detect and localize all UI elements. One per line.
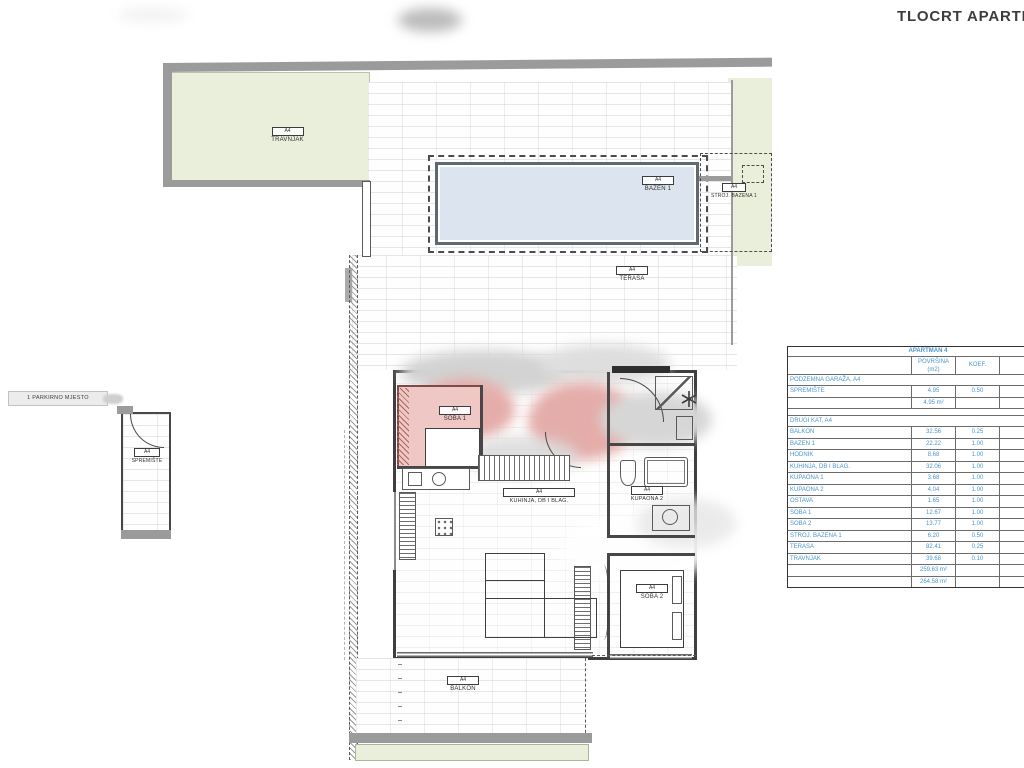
- page-title: TLOCRT APARTI: [897, 8, 1024, 25]
- row-cut: [1000, 485, 1024, 496]
- entrance-mat: [612, 366, 670, 373]
- sofa-chaise: [485, 598, 597, 638]
- total-value: 259.63 m²: [912, 565, 956, 576]
- storage-wall-base: [121, 530, 171, 539]
- table-row: TERASA82.410.25: [788, 541, 1024, 553]
- table-header-row: POVRŠINA(m2) KOEF. POKO: [788, 356, 1024, 374]
- row-name: KUHINJA, DB I BLAG.: [788, 462, 912, 473]
- terrace-paving: [352, 255, 737, 370]
- pool: [435, 162, 699, 245]
- row-cut: [1000, 473, 1024, 484]
- total-value: 264.58 m²: [912, 577, 956, 588]
- row-name: KUPAONA 1: [788, 473, 912, 484]
- label-travnjak: A4 TRAVNJAK: [250, 127, 325, 144]
- row-cut: [1000, 554, 1024, 565]
- dimension-line: [344, 430, 345, 660]
- row-area: 4.95: [912, 386, 956, 397]
- balcony-floor: [356, 658, 588, 735]
- washbasin: [676, 416, 693, 440]
- row-name: HODNIK: [788, 450, 912, 461]
- table-row: HODNIK8.681.00: [788, 449, 1024, 461]
- soba1-bed: [425, 428, 480, 468]
- partition-wall: [607, 535, 695, 538]
- row-koef: 1.00: [956, 496, 1000, 507]
- total-row: 264.58 m² 1: [788, 576, 1024, 588]
- kitchen-appliance: [435, 518, 453, 536]
- sofa-side-curve: [598, 565, 609, 640]
- row-name: KUPAONA 2: [788, 485, 912, 496]
- row-koef: 1.00: [956, 519, 1000, 530]
- label-kuhinja: A4 KUHINJA, DB I BLAG.: [498, 488, 580, 505]
- smudge-blob: [540, 344, 670, 384]
- table-row: TRAVNJAK39.680.10: [788, 553, 1024, 565]
- total-cut: 1: [1000, 565, 1024, 576]
- table-row: SOBA 112.671.00: [788, 507, 1024, 519]
- row-name: TERASA: [788, 542, 912, 553]
- row-area: 3.68: [912, 473, 956, 484]
- room-name: SOBA 2: [626, 593, 678, 601]
- label-stroj-bazena: A4 STROJ. BAZENA 1: [690, 183, 778, 200]
- row-name: BALKON: [788, 427, 912, 438]
- subtotal-value: 4.95 m²: [912, 398, 956, 409]
- row-name: SOBA 2: [788, 519, 912, 530]
- label-balkon: A4 BALKON: [428, 676, 498, 693]
- partition-wall: [607, 443, 695, 446]
- row-name: SOBA 1: [788, 508, 912, 519]
- perimeter-wall-top: [163, 58, 772, 72]
- toilet: [620, 460, 636, 486]
- total-koef: [956, 565, 1000, 576]
- room-name: STROJ. BAZENA 1: [690, 192, 778, 200]
- pool-equipment-detail: [742, 165, 764, 183]
- total-row: 259.63 m² 1: [788, 564, 1024, 576]
- row-cut: [1000, 531, 1024, 542]
- room-name: TRAVNJAK: [250, 136, 325, 144]
- row-name: TRAVNJAK: [788, 554, 912, 565]
- unit-code-box: A4: [722, 183, 746, 192]
- kitchen-sink: [408, 472, 422, 486]
- row-cut: [1000, 496, 1024, 507]
- row-koef: 1.00: [956, 473, 1000, 484]
- row-koef: 1.00: [956, 485, 1000, 496]
- row-area: 12.67: [912, 508, 956, 519]
- label-terasa: A4 TERASA: [600, 266, 664, 283]
- row-cut: [1000, 427, 1024, 438]
- unit-code-box: A4: [631, 486, 663, 495]
- row-koef: 1.00: [956, 508, 1000, 519]
- kitchen-hob: [432, 472, 446, 486]
- partition-wall: [607, 553, 695, 556]
- terrace-door-glass: [394, 492, 396, 570]
- table-row: KUPAONA 24.041.00: [788, 484, 1024, 496]
- floorplan-canvas: TLOCRT APARTI A4 TRAVNJAK A4 BAZEN 1 A4 …: [0, 0, 1024, 768]
- room-name: KUHINJA, DB I BLAG.: [498, 497, 580, 505]
- row-koef: 1.00: [956, 462, 1000, 473]
- sofa-cushion-line: [485, 580, 545, 581]
- row-area: 13.77: [912, 519, 956, 530]
- label-bazen: A4 BAZEN 1: [628, 176, 688, 193]
- table-row: STROJ. BAZENA 16.200.50: [788, 530, 1024, 542]
- table-title-row: APARTMAN 4: [788, 347, 1024, 356]
- vanity-sink: [662, 509, 678, 525]
- subtotal-row: 4.95 m² 1: [788, 397, 1024, 409]
- header-koef: KOEF.: [956, 357, 1000, 374]
- soba1-wall-hatch: [397, 388, 409, 465]
- section-title: PODZEMNA GARAŽA, A4: [788, 375, 1024, 385]
- room-name: BAZEN 1: [628, 185, 688, 193]
- lawn-wall-bottom: [163, 180, 370, 187]
- row-name: OSTAVA: [788, 496, 912, 507]
- row-cut: [1000, 519, 1024, 530]
- subtotal-koef: [956, 398, 1000, 409]
- kitchen-island: [478, 455, 570, 481]
- label-spremiste: A4 SPREMIŠTE: [127, 448, 167, 465]
- table-row: KUHINJA, DB I BLAG.32.061.00: [788, 461, 1024, 473]
- table-title: APARTMAN 4: [788, 347, 1024, 356]
- row-cut: [1000, 508, 1024, 519]
- row-cut: [1000, 542, 1024, 553]
- room-name: BALKON: [428, 685, 498, 693]
- header-cut: POKO: [1000, 357, 1024, 374]
- unit-code-box: A4: [439, 406, 471, 415]
- total-cut: 1: [1000, 577, 1024, 588]
- row-area: 1.65: [912, 496, 956, 507]
- balcony-parapet-wall: [349, 733, 592, 743]
- table-row: BAZEN 122.221.00: [788, 438, 1024, 450]
- smudge-blob: [398, 8, 462, 32]
- row-koef: 0.10: [956, 554, 1000, 565]
- partition-wall: [607, 372, 610, 446]
- row-area: 39.68: [912, 554, 956, 565]
- unit-code-box: A4: [642, 176, 674, 185]
- row-koef: 0.25: [956, 427, 1000, 438]
- row-koef: 1.00: [956, 450, 1000, 461]
- total-blank: [788, 577, 912, 588]
- unit-code-box: A4: [636, 584, 668, 593]
- unit-code-box: A4: [503, 488, 575, 497]
- balcony-planter: [355, 744, 589, 761]
- living-window: [397, 652, 593, 657]
- row-cut: [1000, 386, 1024, 397]
- label-kupaona2: A4 KUPAONA 2: [616, 486, 678, 503]
- smudge-blob: [118, 8, 188, 22]
- section-row: PODZEMNA GARAŽA, A4: [788, 374, 1024, 385]
- row-koef: 1.00: [956, 439, 1000, 450]
- dimension-ticks: [398, 664, 402, 734]
- bathtub: [644, 457, 688, 487]
- table-row: OSTAVA1.651.00: [788, 495, 1024, 507]
- room-name: TERASA: [600, 275, 664, 283]
- row-area: 82.41: [912, 542, 956, 553]
- label-soba1: A4 SOBA 1: [428, 406, 482, 423]
- row-cut: [1000, 439, 1024, 450]
- partition-wall: [607, 443, 610, 538]
- row-koef: 0.50: [956, 531, 1000, 542]
- table-row: KUPAONA 13.681.00: [788, 472, 1024, 484]
- row-area: 22.22: [912, 439, 956, 450]
- unit-code-box: A4: [272, 127, 304, 136]
- table-row: SOBA 213.771.00: [788, 518, 1024, 530]
- row-area: 6.20: [912, 531, 956, 542]
- row-cut: [1000, 450, 1024, 461]
- parking-label: 1 PARKIRNO MJESTO: [8, 391, 108, 406]
- shower: [655, 376, 693, 410]
- unit-code-box: A4: [447, 676, 479, 685]
- row-area: 32.06: [912, 462, 956, 473]
- apartment-dashed-edge-bottom: [592, 655, 696, 656]
- row-koef: 0.25: [956, 542, 1000, 553]
- room-name: SPREMIŠTE: [127, 457, 167, 465]
- subtotal-blank: [788, 398, 912, 409]
- total-koef: [956, 577, 1000, 588]
- spacer-row: [788, 408, 1024, 415]
- label-soba2: A4 SOBA 2: [626, 584, 678, 601]
- wall-pillar: [362, 181, 371, 257]
- row-name: STROJ. BAZENA 1: [788, 531, 912, 542]
- perimeter-wall-left: [163, 63, 172, 187]
- room-name: SOBA 1: [428, 415, 482, 423]
- section-title: DRUGI KAT, A4: [788, 416, 1024, 426]
- table-row: SPREMIŠTE 4.95 0.50: [788, 385, 1024, 397]
- soba2-pillow: [672, 612, 682, 640]
- row-name: BAZEN 1: [788, 439, 912, 450]
- header-area: POVRŠINA(m2): [912, 357, 956, 374]
- total-blank: [788, 565, 912, 576]
- unit-code-box: A4: [134, 448, 160, 457]
- row-cut: [1000, 462, 1024, 473]
- row-name: SPREMIŠTE: [788, 386, 912, 397]
- unit-code-box: A4: [616, 266, 648, 275]
- header-blank: [788, 357, 912, 374]
- subtotal-cut: 1: [1000, 398, 1024, 409]
- row-area: 8.68: [912, 450, 956, 461]
- table-row: BALKON32.560.25: [788, 426, 1024, 438]
- storage-wall-stub: [117, 406, 133, 414]
- room-name: KUPAONA 2: [616, 495, 678, 503]
- area-table: APARTMAN 4 POVRŠINA(m2) KOEF. POKO PODZE…: [787, 346, 1024, 588]
- kitchen-cabinet-column: [399, 492, 416, 560]
- balcony-edge-right: [585, 658, 586, 738]
- row-koef: 0.50: [956, 386, 1000, 397]
- section-row: DRUGI KAT, A4: [788, 415, 1024, 426]
- row-area: 4.04: [912, 485, 956, 496]
- row-area: 32.56: [912, 427, 956, 438]
